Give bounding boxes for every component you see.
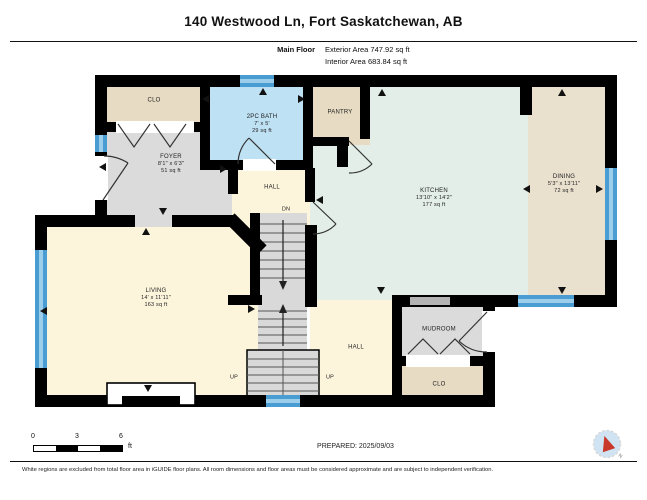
footer-divider	[10, 461, 637, 462]
scale-tick-0: 0	[28, 433, 38, 440]
mudroom-cased-opening	[410, 297, 450, 305]
scale-tick-3: 3	[72, 433, 82, 440]
floor-plan-page: 140 Westwood Ln, Fort Saskatchewan, AB M…	[0, 0, 647, 500]
room-label-hall-upper: HALL	[264, 185, 280, 192]
room-label-kitchen: KITCHEN 13'10" x 14'2" 177 sq ft	[416, 188, 452, 208]
prepared-date-label: PREPARED: 2025/09/03	[64, 443, 647, 450]
room-label-foyer: FOYER 8'1" x 6'3" 51 sq ft	[158, 154, 184, 174]
room-label-mudroom: MUDROOM	[422, 327, 456, 334]
room-label-bath: 2PC BATH 7' x 5' 29 sq ft	[247, 114, 278, 134]
stair-up-right-label: UP	[326, 375, 334, 382]
floor-plan-drawing: N	[0, 0, 647, 500]
disclaimer-text: White regions are excluded from total fl…	[22, 467, 632, 473]
room-label-living: LIVING 14' x 11'11" 163 sq ft	[141, 288, 171, 308]
room-label-hall-lower: HALL	[348, 345, 364, 352]
room-label-clo-top: CLO	[148, 98, 161, 105]
room-label-dining: DINING 5'3" x 13'11" 72 sq ft	[548, 174, 580, 194]
compass-north-label: N	[617, 453, 624, 460]
stair-up-left-label: UP	[230, 375, 238, 382]
scale-tick-6: 6	[116, 433, 126, 440]
room-label-pantry: PANTRY	[328, 110, 353, 117]
room-label-clo-bottom: CLO	[433, 382, 446, 389]
stair-dn-label: DN	[282, 207, 290, 214]
room-living-floor	[40, 227, 258, 402]
